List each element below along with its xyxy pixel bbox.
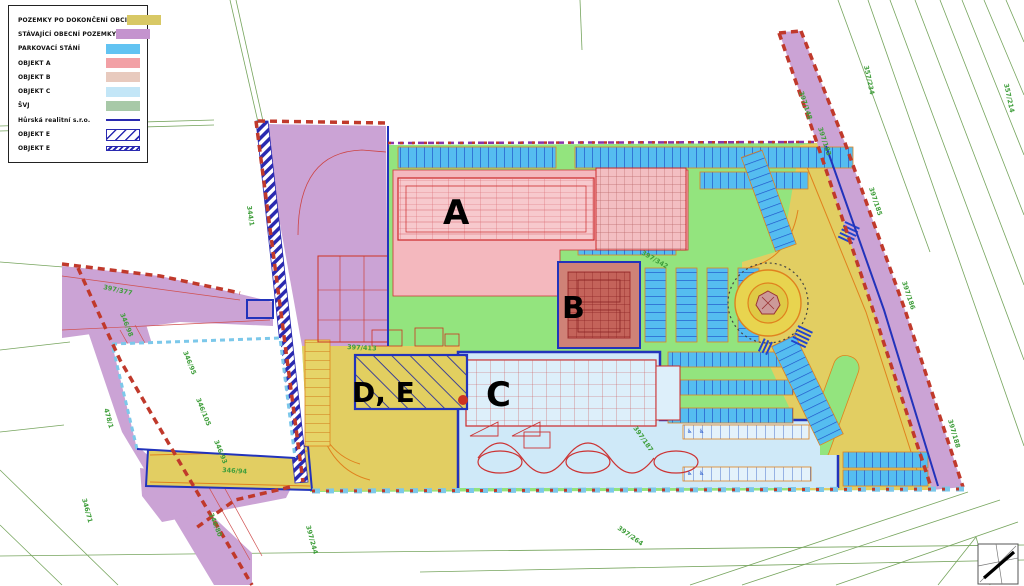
legend-label: OBJEKT E <box>18 131 50 138</box>
legend-label: ŠVJ <box>18 102 30 109</box>
parcel-label: 357/214 <box>1002 83 1016 114</box>
legend-label: POZEMKY PO DOKONČENÍ OBCI <box>18 17 127 24</box>
wheelchair-icon: ♿ <box>687 428 692 435</box>
objekt-a-annex-detail <box>596 168 686 250</box>
label-objekt-de: D, E <box>352 376 415 409</box>
legend-item: STÁVAJÍCÍ OBECNÍ POZEMKY <box>18 27 140 41</box>
legend-swatch-solid <box>106 44 140 54</box>
legend-item: OBJEKT B <box>18 70 140 84</box>
legend-swatch-hatch <box>106 129 140 141</box>
legend-swatch-solid <box>106 87 140 97</box>
parking-column-yellow <box>305 340 330 446</box>
legend-swatch-line <box>106 119 140 121</box>
legend-label: STÁVAJÍCÍ OBECNÍ POZEMKY <box>18 31 116 38</box>
parking-row <box>843 470 928 486</box>
legend-item: Hůrská realitní s.r.o. <box>18 113 140 127</box>
legend-swatch-solid <box>106 58 140 68</box>
parking-column <box>645 268 666 342</box>
legend: POZEMKY PO DOKONČENÍ OBCISTÁVAJÍCÍ OBECN… <box>8 5 148 163</box>
legend-label: Hůrská realitní s.r.o. <box>18 117 90 124</box>
legend-swatch-solid <box>116 29 150 39</box>
legend-item: OBJEKT A <box>18 56 140 70</box>
wheelchair-icon: ♿ <box>699 470 704 477</box>
wheelchair-icon: ♿ <box>687 470 692 477</box>
parcel-label: 478/1 <box>102 407 115 429</box>
legend-label: OBJEKT E <box>18 145 50 152</box>
legend-item: ŠVJ <box>18 99 140 113</box>
legend-label: PARKOVACÍ STÁNÍ <box>18 45 80 52</box>
parking-row <box>575 147 853 168</box>
legend-item: OBJEKT C <box>18 84 140 98</box>
label-objekt-b: B <box>562 291 585 326</box>
parking-row <box>668 380 793 395</box>
red-dashed-north-block <box>258 121 386 123</box>
parking-column <box>707 268 728 342</box>
legend-item: OBJEKT E <box>18 142 140 156</box>
white-parcel-area <box>112 338 295 458</box>
legend-label: OBJEKT B <box>18 74 51 81</box>
plan-canvas: ♿ ♿ ♿ ♿ 357/234357/214397/148397/183397/… <box>0 0 1024 586</box>
north-arrow-box <box>978 544 1018 584</box>
parcel-label: 397/413 <box>347 343 377 353</box>
parking-column <box>676 268 697 342</box>
objekt-de-marker <box>458 395 468 405</box>
legend-item: PARKOVACÍ STÁNÍ <box>18 42 140 56</box>
legend-item: POZEMKY PO DOKONČENÍ OBCI <box>18 13 140 27</box>
legend-swatch-solid <box>106 101 140 111</box>
legend-swatch-solid <box>127 15 161 25</box>
parking-row <box>843 452 928 468</box>
legend-item: OBJEKT E <box>18 127 140 141</box>
parking-row <box>398 147 556 168</box>
legend-label: OBJEKT A <box>18 60 51 67</box>
parcel-label: 344/1 <box>245 205 256 227</box>
site-plan: ♿ ♿ ♿ ♿ 357/234357/214397/148397/183397/… <box>0 0 1024 586</box>
label-objekt-c: C <box>486 375 511 415</box>
parking-row <box>668 408 793 423</box>
label-objekt-a: A <box>443 193 470 233</box>
parcel-label: 397/264 <box>616 524 645 548</box>
wheelchair-icon: ♿ <box>699 428 704 435</box>
legend-label: OBJEKT C <box>18 88 50 95</box>
legend-swatch-solid <box>106 72 140 82</box>
legend-items: POZEMKY PO DOKONČENÍ OBCISTÁVAJÍCÍ OBECN… <box>18 13 140 156</box>
parcel-label: 397/244 <box>304 524 319 555</box>
parcel-label: 357/234 <box>862 65 876 96</box>
objekt-c-annex <box>656 366 680 420</box>
site-border-north <box>388 142 818 143</box>
parking-row <box>668 352 793 367</box>
parcel-label: 346/71 <box>80 497 94 524</box>
legend-swatch-dense <box>106 146 140 151</box>
objekt-a-detail <box>398 178 594 240</box>
